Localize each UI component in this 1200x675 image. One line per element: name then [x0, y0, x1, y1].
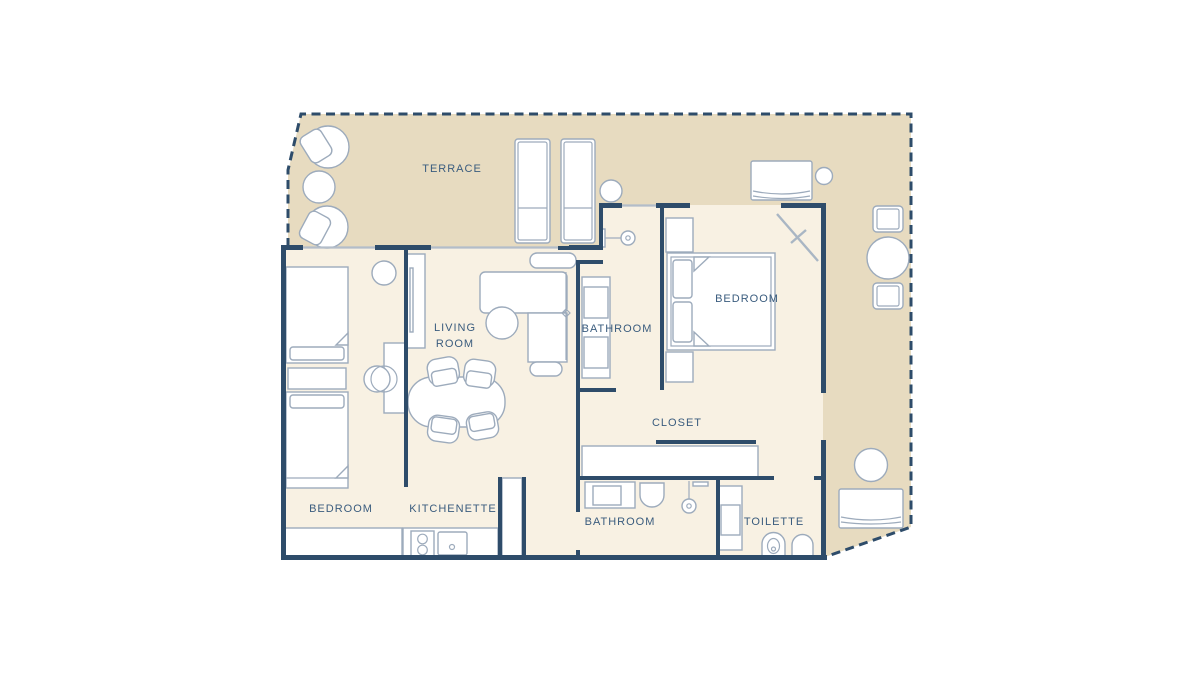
- sink-vanity-icon: [585, 482, 635, 508]
- wardrobe-shelf-icon: [666, 218, 693, 252]
- nightstand-icon: [288, 368, 346, 389]
- single-bed-icon: [286, 392, 348, 488]
- room-label-closet: CLOSET: [652, 417, 702, 429]
- round-table-icon: [303, 171, 335, 203]
- stove-icon: [411, 531, 434, 556]
- stool-icon: [372, 261, 396, 285]
- shower-tray-icon: [719, 486, 742, 550]
- toilet-icon: [640, 483, 664, 507]
- wardrobe-icon: [285, 528, 402, 557]
- dining-chair-icon: [426, 414, 460, 444]
- daybed-icon: [839, 489, 903, 528]
- dining-chair-icon: [426, 355, 461, 387]
- dining-chair-icon: [465, 410, 500, 441]
- room-label-bathroom-upper: BATHROOM: [582, 323, 653, 335]
- dining-chair-icon: [462, 358, 496, 389]
- room-label-bedroom-second: BEDROOM: [309, 503, 373, 515]
- room-label-bathroom-lower: BATHROOM: [585, 516, 656, 528]
- coffee-table-icon: [486, 307, 518, 339]
- floor-plan: TERRACE LIVING ROOM BATHROOM BEDROOM CLO…: [0, 0, 1200, 675]
- bidet-icon: [762, 533, 785, 559]
- toilet-icon: [792, 535, 813, 559]
- room-label-toilette: TOILETTE: [744, 516, 804, 528]
- floor-plan-svg: TERRACE LIVING ROOM BATHROOM BEDROOM CLO…: [0, 0, 1200, 675]
- sun-lounger-icon: [515, 139, 550, 243]
- daybed-icon: [751, 161, 812, 200]
- wardrobe-counter-icon: [582, 446, 758, 477]
- round-dining-table-icon: [867, 237, 909, 279]
- terrace-chair-icon: [873, 206, 903, 232]
- room-label-bedroom-main: BEDROOM: [715, 293, 779, 305]
- room-label-living-line2: ROOM: [436, 338, 474, 350]
- room-label-living-line1: LIVING: [434, 322, 476, 334]
- nightstand-icon: [666, 352, 693, 382]
- terrace-chair-icon: [873, 283, 903, 309]
- room-label-terrace: TERRACE: [422, 163, 482, 175]
- round-table-icon: [855, 449, 888, 482]
- sun-lounger-icon: [561, 139, 595, 243]
- side-table-icon: [816, 168, 833, 185]
- room-label-kitchenette: KITCHENETTE: [409, 503, 496, 515]
- single-bed-icon: [286, 267, 348, 363]
- sink-icon: [438, 532, 467, 555]
- side-table-icon: [600, 180, 622, 202]
- tv-console-icon: [407, 254, 425, 348]
- fridge-icon: [502, 478, 522, 557]
